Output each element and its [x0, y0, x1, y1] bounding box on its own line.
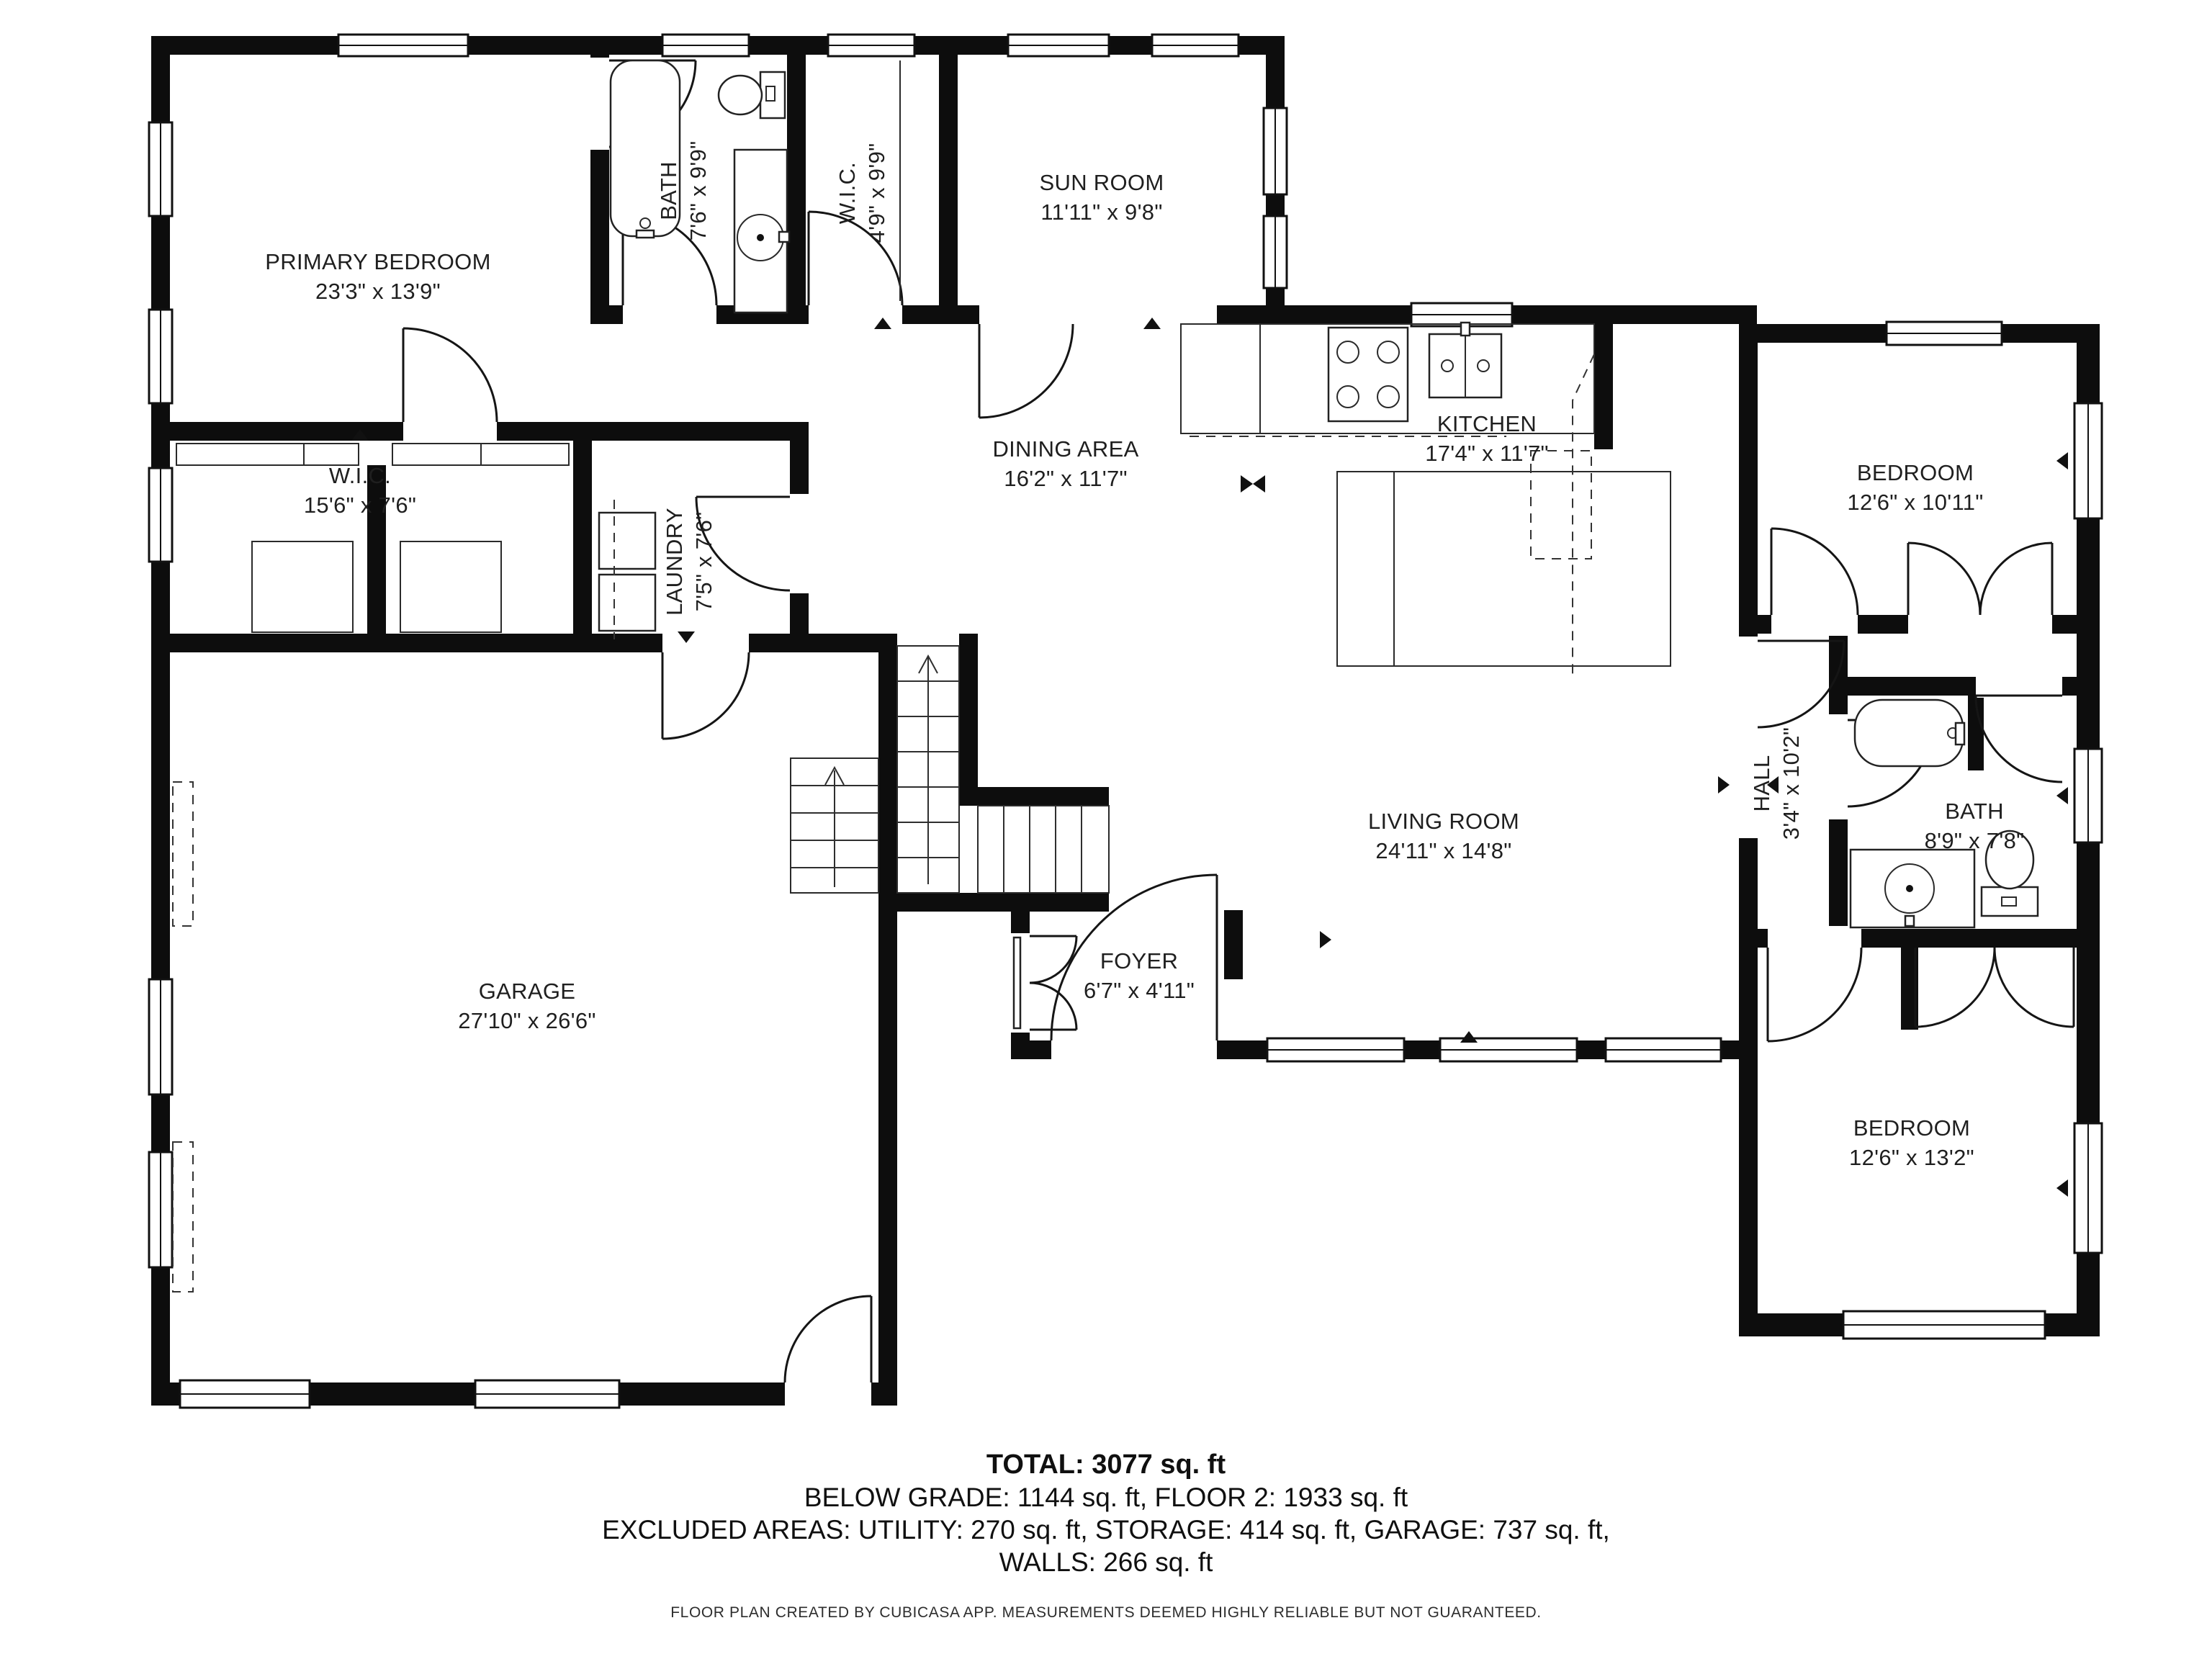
room-dims: 12'6" x 13'2" [1849, 1143, 1974, 1173]
laundry-appliances [599, 500, 655, 639]
room-name: PRIMARY BEDROOM [265, 248, 490, 277]
room-label-bath-upper: BATH 7'6" x 9'9" [655, 141, 714, 241]
room-name: LIVING ROOM [1368, 807, 1519, 837]
windows [149, 35, 2102, 1408]
room-label-laundry: LAUNDRY 7'5" x 7'6" [660, 508, 719, 616]
total-area: TOTAL: 3077 sq. ft [0, 1449, 2212, 1481]
room-label-sun-room: SUN ROOM 11'11" x 9'8" [1040, 168, 1164, 228]
area-summary: TOTAL: 3077 sq. ft BELOW GRADE: 1144 sq.… [0, 1449, 2212, 1578]
room-name: W.I.C. [304, 462, 416, 491]
room-label-living-room: LIVING ROOM 24'11" x 14'8" [1368, 807, 1519, 866]
room-dims: 23'3" x 13'9" [265, 277, 490, 307]
room-label-bedroom-lower-right: BEDROOM 12'6" x 13'2" [1849, 1114, 1974, 1173]
room-label-hall: HALL 3'4" x 10'2" [1748, 727, 1807, 840]
toilet-icon [760, 72, 785, 118]
room-label-bedroom-upper-right: BEDROOM 12'6" x 10'11" [1847, 459, 1983, 518]
floor-plan: PRIMARY BEDROOM 23'3" x 13'9" BATH 7'6" … [0, 0, 2212, 1659]
dryer-icon [599, 575, 655, 631]
room-name: DINING AREA [992, 435, 1138, 464]
room-name: BEDROOM [1849, 1114, 1974, 1143]
opening-markers [351, 318, 2068, 1197]
room-dims: 15'6" x 7'6" [304, 491, 416, 521]
room-label-garage: GARAGE 27'10" x 26'6" [458, 977, 595, 1036]
room-dims: 27'10" x 26'6" [458, 1007, 595, 1036]
room-dims: 4'9" x 9'9" [863, 143, 892, 243]
room-name: BATH [655, 141, 684, 241]
room-name: SUN ROOM [1040, 168, 1164, 198]
room-label-foyer: FOYER 6'7" x 4'11" [1084, 947, 1195, 1006]
room-dims: 7'5" x 7'6" [690, 508, 719, 616]
room-dims: 11'11" x 9'8" [1040, 198, 1164, 228]
room-name: KITCHEN [1425, 410, 1549, 439]
room-label-kitchen: KITCHEN 17'4" x 11'7" [1425, 410, 1549, 469]
room-label-bath-right: BATH 8'9" x 7'8" [1925, 797, 2025, 856]
room-dims: 7'6" x 9'9" [684, 141, 714, 241]
room-label-dining-area: DINING AREA 16'2" x 11'7" [992, 435, 1138, 494]
walls-area: WALLS: 266 sq. ft [0, 1546, 2212, 1578]
room-name: LAUNDRY [660, 508, 690, 616]
room-dims: 16'2" x 11'7" [992, 464, 1138, 494]
kitchen-island [1337, 472, 1671, 666]
walls [151, 36, 2100, 1406]
door-openings [403, 58, 2062, 1408]
room-dims: 3'4" x 10'2" [1777, 727, 1807, 840]
room-name: BEDROOM [1847, 459, 1983, 488]
room-dims: 6'7" x 4'11" [1084, 976, 1195, 1006]
room-label-wic-upper: W.I.C. 4'9" x 9'9" [833, 143, 892, 243]
stairs [791, 646, 1109, 893]
room-label-primary-bedroom: PRIMARY BEDROOM 23'3" x 13'9" [265, 248, 490, 307]
app-credit: FLOOR PLAN CREATED BY CUBICASA APP. MEAS… [0, 1604, 2212, 1622]
room-dims: 8'9" x 7'8" [1925, 827, 2025, 856]
room-name: BATH [1925, 797, 2025, 827]
bathtub-icon [1855, 700, 1963, 766]
toilet-icon [1982, 887, 2038, 916]
room-name: FOYER [1084, 947, 1195, 976]
garage-marks [173, 782, 193, 1292]
room-name: GARAGE [458, 977, 595, 1007]
room-name: W.I.C. [833, 143, 863, 243]
room-dims: 17'4" x 11'7" [1425, 439, 1549, 469]
room-dims: 12'6" x 10'11" [1847, 488, 1983, 518]
floor-areas: BELOW GRADE: 1144 sq. ft, FLOOR 2: 1933 … [0, 1481, 2212, 1514]
room-dims: 24'11" x 14'8" [1368, 837, 1519, 866]
room-label-wic-left: W.I.C. 15'6" x 7'6" [304, 462, 416, 521]
stove-icon [1328, 328, 1408, 421]
excluded-areas: EXCLUDED AREAS: UTILITY: 270 sq. ft, STO… [0, 1514, 2212, 1546]
washer-icon [599, 513, 655, 569]
doors [403, 60, 2074, 1382]
room-name: HALL [1748, 727, 1777, 840]
